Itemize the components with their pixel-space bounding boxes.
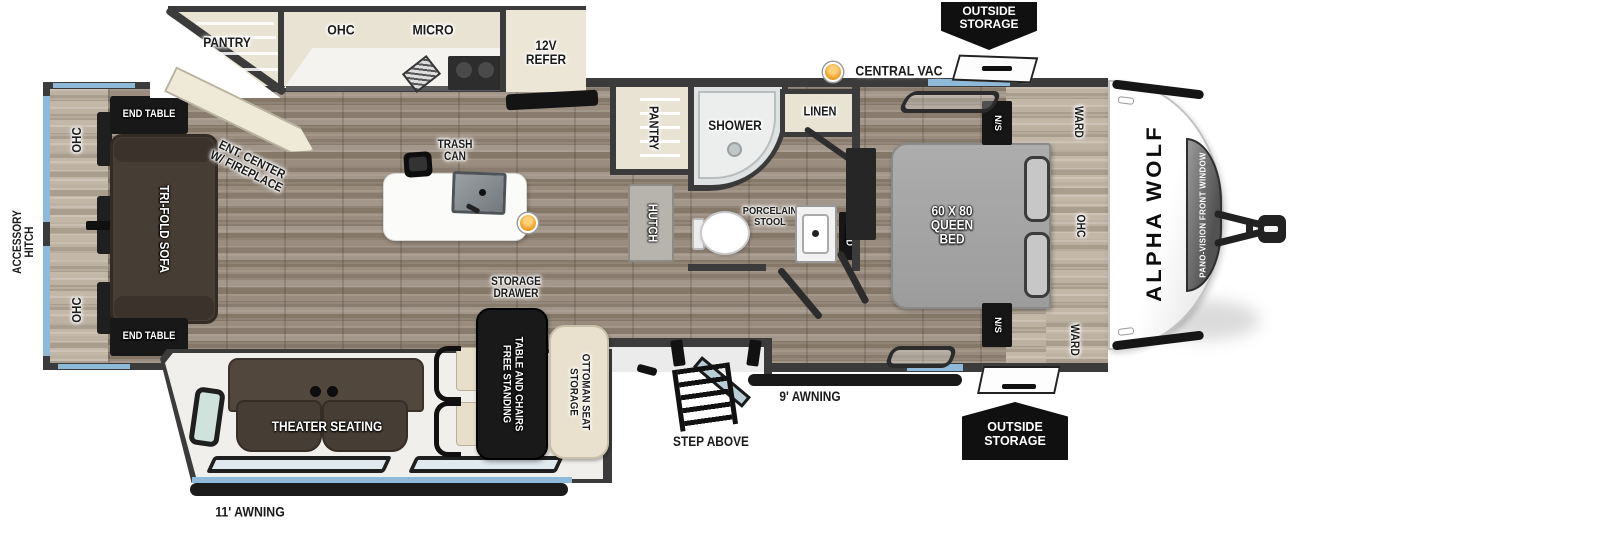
rear-window-left-top [43,96,50,222]
sofa-bolster [114,296,214,320]
theater-seating-label: THEATER SEATING [272,420,382,434]
pantry-shelf-line [232,68,280,71]
dinette-chair [434,346,461,402]
central-vac-label: CENTRAL VAC [855,64,942,79]
ward-top-label: WARD [1072,106,1084,138]
dinette-chair [434,401,461,457]
refer-label: 12V REFER [526,39,566,67]
toilet-label: PORCELAIN STOOL [743,206,797,228]
bedroom-mat-top [897,91,1003,113]
kitchen-pantry-label: PANTRY [203,36,251,50]
rear-window-left-bottom [43,246,50,356]
trash-can-lid [409,156,428,171]
bath-pantry-wall-bottom [610,169,689,175]
island-sink-drain [479,189,486,196]
hitch-cross-member [1246,220,1253,238]
rear-window-top [53,83,135,88]
outside-storage-bottom-badge: OUTSIDE STORAGE [962,402,1068,460]
theater-cupholder [310,386,321,397]
ward-bottom-label: WARD [1068,324,1080,356]
bedroom-mat-bottom [884,346,958,368]
bed-pillow [1024,232,1050,298]
bath-pantry-shelf [640,154,680,157]
end-table-bottom-label: END TABLE [123,331,176,343]
queen-bed-label: 60 X 80 QUEEN BED [931,205,973,248]
pantry-shelf-line [196,22,274,25]
hutch-label: HUTCH [645,204,658,243]
entry-interior-wall [607,338,772,347]
storage-ottoman-label: STORAGE OTTOMAN SEAT [567,354,590,431]
end-table-top-label: END TABLE [123,109,176,121]
rear-ohc-top-label: OHC [70,127,84,152]
sofa-bolster [114,138,214,162]
tri-fold-sofa-label: TRI-FOLD SOFA [157,185,171,273]
front-window-label: PANO-VISION FRONT WINDOW [1199,152,1208,278]
shower-drain [727,142,742,157]
nightstand-bottom-label: N/S [992,317,1002,333]
kitchen-micro-label: MICRO [412,23,453,38]
accessory-hitch-label: ACCESSORY HITCH [12,210,36,274]
kitchen-divider [278,10,284,90]
bedroom-dresser [846,148,876,240]
awning-rear-label: 11' AWNING [215,505,285,520]
bath-pantry-shelf [640,98,680,101]
bath-pantry-label: PANTRY [646,106,659,150]
slide-window [206,456,392,473]
shower-label: SHOWER [708,119,761,133]
baggage-door-bottom [977,366,1061,394]
bedroom-ohc-label: OHC [1074,214,1086,237]
cooktop-burner [456,62,472,78]
floor-outlet-dot [518,213,538,233]
trash-can-label: TRASH CAN [438,139,473,163]
rear-window-bottom [58,364,130,369]
entry-steps [672,362,738,431]
bath-bottom-wall [688,264,766,271]
bed-pillow [1024,156,1050,222]
linen-label: LINEN [804,105,837,118]
awning-front-label: 9' AWNING [779,390,840,404]
vanity-faucet [812,230,819,237]
baggage-door-bottom-handle [1002,384,1036,389]
floorplan-canvas: OHC OHC ACCESSORY HITCH END TABLE TRI-FO… [0,0,1600,547]
step-above-label: STEP ABOVE [673,435,749,449]
brand-logo: ALPHA WOLF [1143,124,1167,302]
rear-ohc-bottom-label: OHC [70,297,84,322]
pantry-shelf-line [216,52,278,55]
outside-storage-top-badge: OUTSIDE STORAGE [941,2,1037,50]
bath-pantry-wall-left [610,87,616,175]
accessory-hitch-bar [86,221,113,230]
central-vac-dot [823,62,843,82]
cooktop-burner [478,62,494,78]
dinette-table-label: FREE STANDING TABLE AND CHAIRS [500,337,523,432]
awning-rail-rear [190,483,568,496]
nightstand-top-label: N/S [992,115,1002,131]
storage-drawer-label: STORAGE DRAWER [491,276,541,300]
awning-rail-front [748,374,962,386]
kitchen-ohc-label: OHC [327,23,354,38]
theater-cupholder [327,386,338,397]
baggage-door-top-handle [982,66,1012,71]
hitch-coupler-latch [1264,226,1278,232]
